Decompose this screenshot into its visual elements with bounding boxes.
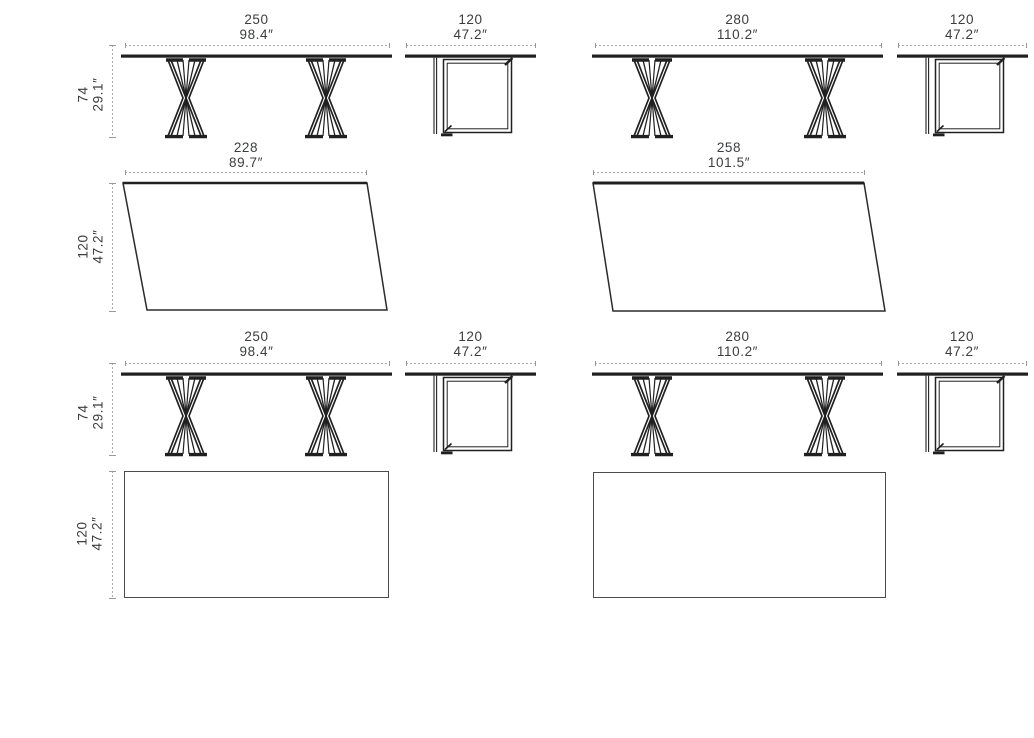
dim-value-inch: 98.4″: [122, 27, 391, 42]
dim-label-height-74: 74 29.1″: [77, 378, 106, 448]
dimension-line-horizontal: [125, 45, 390, 46]
top-view-rect-280: [593, 472, 886, 598]
dim-value-inch: 110.2″: [592, 344, 883, 359]
dim-value-cm: 280: [592, 12, 883, 27]
front-view-table-250: [120, 371, 393, 461]
top-view-parallelogram-258: [588, 180, 890, 318]
dim-label-height-74: 74 29.1″: [77, 60, 106, 130]
dim-value-inch: 47.2″: [90, 499, 105, 569]
side-view-table-250: [405, 371, 537, 461]
dim-label-width-258: 258 101.5″: [593, 140, 865, 170]
dimension-line-vertical: [112, 363, 113, 456]
dim-value-inch: 47.2″: [405, 344, 536, 359]
dim-value-cm: 258: [593, 140, 865, 155]
dim-value-inch: 101.5″: [593, 155, 865, 170]
dimension-line-horizontal: [595, 45, 882, 46]
dim-value-cm: 120: [896, 329, 1028, 344]
dim-value-cm: 120: [405, 329, 536, 344]
front-view-table-280: [592, 53, 883, 143]
dim-value-inch: 29.1″: [91, 378, 106, 448]
dim-value-inch: 89.7″: [125, 155, 367, 170]
dim-value-inch: 29.1″: [91, 60, 106, 130]
dim-label-depth-120: 120 47.2″: [896, 329, 1028, 359]
side-view-table-280: [897, 53, 1029, 143]
dimension-line-vertical: [112, 183, 113, 312]
dimension-line-vertical: [112, 45, 113, 138]
dimension-line-horizontal: [898, 45, 1027, 46]
dim-value-cm: 250: [122, 12, 391, 27]
dim-label-depth-120: 120 47.2″: [76, 499, 105, 569]
dim-value-cm: 120: [405, 12, 536, 27]
dimension-line-horizontal: [406, 363, 536, 364]
dimension-line-horizontal: [898, 363, 1027, 364]
dimension-drawing-sheet: 250 98.4″ 74 29.1″ 120 47.2″ 280 110.2″ …: [0, 0, 1034, 738]
dimension-line-horizontal: [595, 363, 882, 364]
dim-value-cm: 280: [592, 329, 883, 344]
dim-value-inch: 110.2″: [592, 27, 883, 42]
dim-value-cm: 120: [77, 212, 92, 282]
dim-value-inch: 47.2″: [896, 27, 1028, 42]
dim-label-depth-120: 120 47.2″: [405, 12, 536, 42]
dim-value-inch: 47.2″: [896, 344, 1028, 359]
dim-value-inch: 47.2″: [91, 212, 106, 282]
top-view-parallelogram-228: [120, 180, 392, 316]
front-view-table-250: [120, 53, 393, 143]
side-view-table-250: [405, 53, 537, 143]
dimension-line-horizontal: [125, 172, 367, 173]
top-view-rect-250: [124, 471, 389, 598]
dim-value-cm: 120: [76, 499, 91, 569]
dim-label-depth-120: 120 47.2″: [896, 12, 1028, 42]
dimension-line-horizontal: [593, 172, 865, 173]
dim-value-cm: 74: [77, 378, 92, 448]
dim-value-inch: 47.2″: [405, 27, 536, 42]
dim-label-depth-120: 120 47.2″: [77, 212, 106, 282]
dim-value-cm: 120: [896, 12, 1028, 27]
dimension-line-vertical: [112, 471, 113, 599]
dimension-line-horizontal: [406, 45, 536, 46]
dim-value-cm: 74: [77, 60, 92, 130]
dim-value-cm: 228: [125, 140, 367, 155]
dim-label-width-250: 250 98.4″: [122, 12, 391, 42]
front-view-table-280: [592, 371, 883, 461]
dim-label-depth-120: 120 47.2″: [405, 329, 536, 359]
dim-value-cm: 250: [122, 329, 391, 344]
side-view-table-280: [897, 371, 1029, 461]
dim-label-width-280: 280 110.2″: [592, 329, 883, 359]
dim-label-width-250: 250 98.4″: [122, 329, 391, 359]
dim-label-width-280: 280 110.2″: [592, 12, 883, 42]
dim-value-inch: 98.4″: [122, 344, 391, 359]
dimension-line-horizontal: [125, 363, 390, 364]
dim-label-width-228: 228 89.7″: [125, 140, 367, 170]
